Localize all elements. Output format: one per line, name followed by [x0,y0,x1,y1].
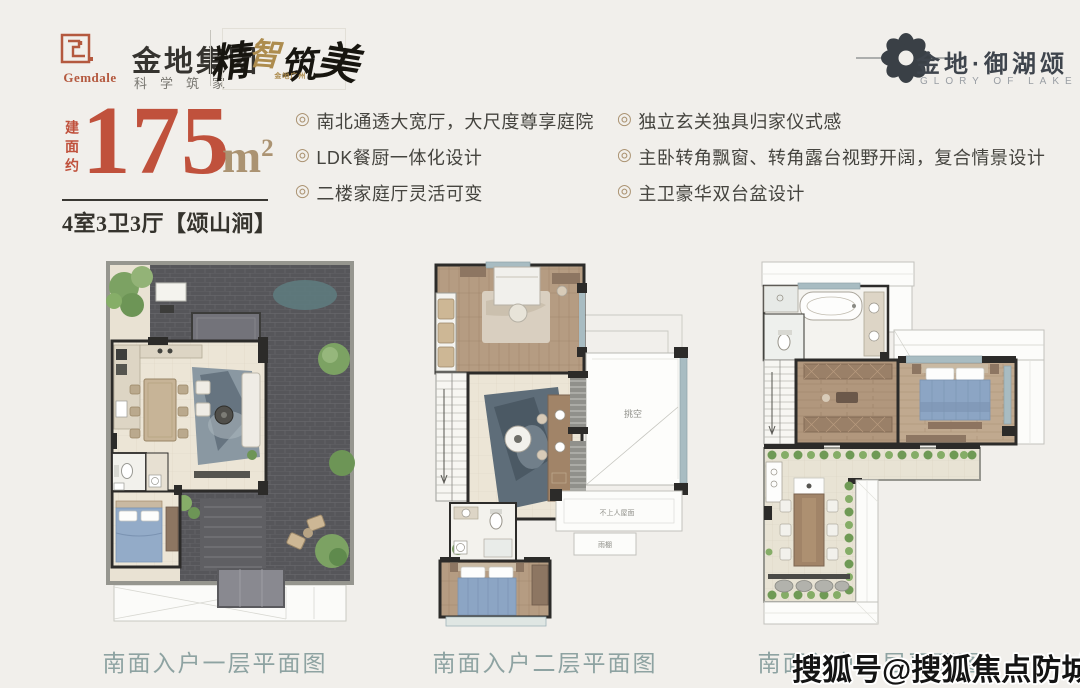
plan2-bathroom [450,503,516,561]
plan1-caption: 南面入户一层平面图 [90,644,340,678]
plan3-stairs [764,360,796,444]
feature-text: 主卧转角飘窗、转角露台视野开阔，复合情景设计 [638,144,1045,170]
void-label: 挑空 [624,408,642,419]
floorplan-level3 [756,252,1048,630]
calligraphy-char: 美 [312,26,363,93]
calligraphy-motto: 精 智 筑 美 金地广州 [222,28,346,90]
calligraphy-char: 智 [248,27,282,74]
watermark: 搜狐号@搜狐焦点防城港站 [792,645,1080,688]
canopy-label: 雨棚 [598,540,612,549]
plan3-master-bath [764,283,888,360]
feature-text: 二楼家庭厅灵活可变 [316,180,483,206]
area-value: 175 [82,92,231,189]
area-underline [62,199,268,201]
feature-item: ◎二楼家庭厅灵活可变 [295,180,483,206]
gemdale-seal-icon [60,33,94,67]
bullet-icon: ◎ [617,144,632,165]
plan2-roof-outline [582,315,682,353]
plan2-caption: 南面入户二层平面图 [420,644,670,678]
feature-item: ◎LDK餐厨一体化设计 [295,144,482,170]
plan2-upper-bedroom [436,262,587,373]
feature-text: LDK餐厨一体化设计 [316,144,482,170]
plan2-stairs [436,373,468,501]
calligraphy-subtext: 金地广州 [274,71,306,81]
plan1-entry-canopy [218,569,284,607]
feature-text: 主卫豪华双台盆设计 [638,180,805,206]
unit-layout: 4室3卫3厅【颂山涧】 [62,206,277,238]
area-unit-exp: 2 [261,135,274,162]
calligraphy-char: 筑 [279,36,318,90]
feature-item: ◎南北通透大宽厅，大尺度尊享庭院 [295,108,594,134]
plan2-void-area: 挑空 [586,347,688,495]
poster: Gemdale 金地集团 科学筑家 精 智 筑 美 金地广州 金地·御湖颂 GL [0,0,1080,688]
plan2-lower-bedroom [440,557,550,626]
plan2-roof-labels: 不上人屋面 雨棚 [550,489,682,555]
bullet-icon: ◎ [295,144,310,165]
bullet-icon: ◎ [295,180,310,201]
bullet-icon: ◎ [295,108,310,129]
bullet-icon: ◎ [617,108,632,129]
plan3-master-bedroom [898,356,1016,444]
project-name: 金地·御湖颂 [916,44,1068,79]
gemdale-en-label: Gemdale [50,70,130,86]
calligraphy-char: 精 [207,28,253,90]
feature-text: 独立玄关独具归家仪式感 [638,108,842,134]
feature-item: ◎独立玄关独具归家仪式感 [617,108,842,134]
bullet-icon: ◎ [617,180,632,201]
feature-text: 南北通透大宽厅，大尺度尊享庭院 [316,108,594,134]
area-unit: m2 [222,134,274,181]
feature-item: ◎主卧转角飘窗、转角露台视野开阔，复合情景设计 [617,144,1045,170]
floorplan-level2: 挑空 [424,257,696,631]
plan3-dressing-room [796,360,898,444]
feature-item: ◎主卫豪华双台盆设计 [617,180,805,206]
area-prefix: 建面约 [62,120,82,177]
project-subtitle: GLORY OF LAKE [920,76,1078,87]
floorplan-level1 [100,255,360,627]
area-unit-m: m [222,131,261,183]
roof-label: 不上人屋面 [600,508,635,517]
